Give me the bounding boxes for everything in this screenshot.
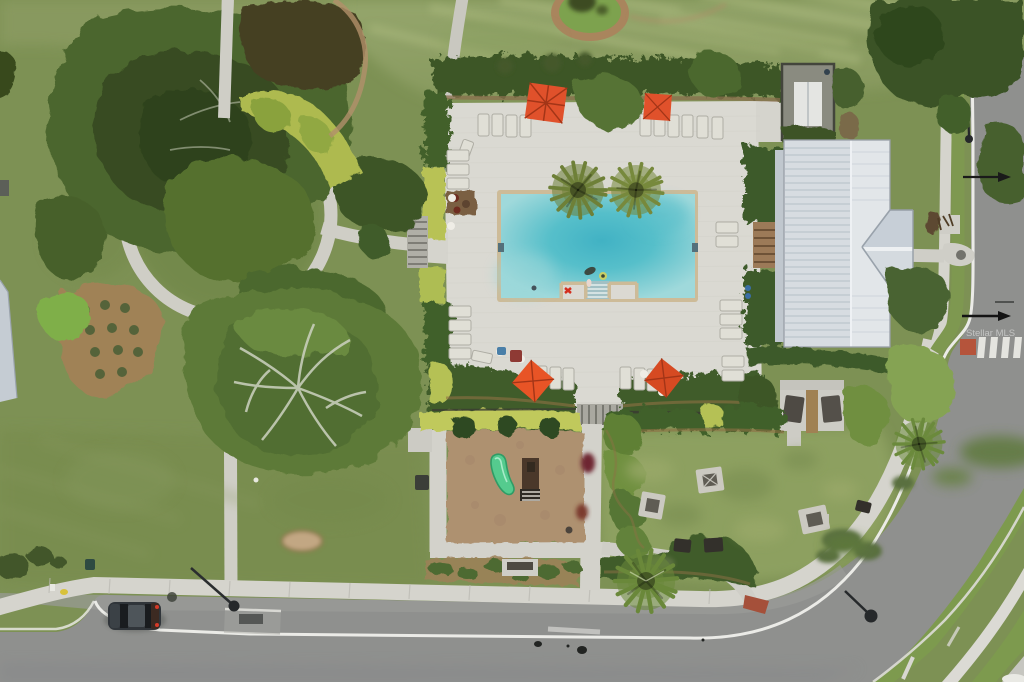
- svg-text:Stellar MLS: Stellar MLS: [966, 328, 1015, 339]
